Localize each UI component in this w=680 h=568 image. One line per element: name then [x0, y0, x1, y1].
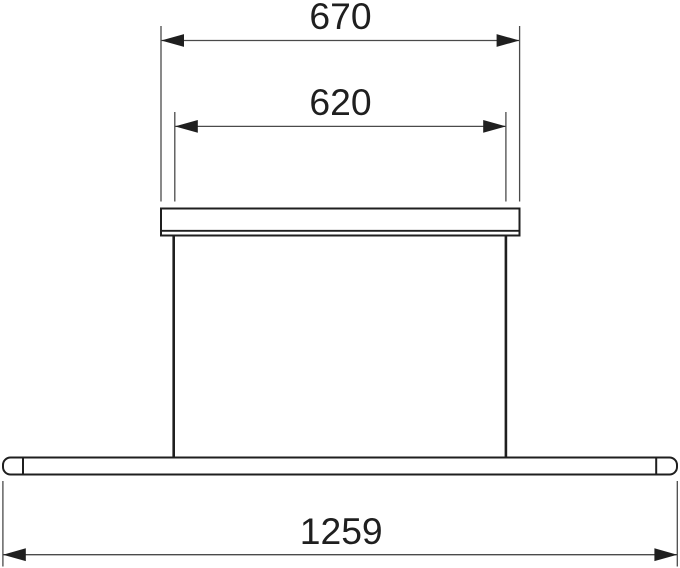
svg-text:1259: 1259	[300, 510, 383, 552]
svg-text:620: 620	[309, 81, 371, 123]
svg-text:670: 670	[309, 0, 371, 37]
